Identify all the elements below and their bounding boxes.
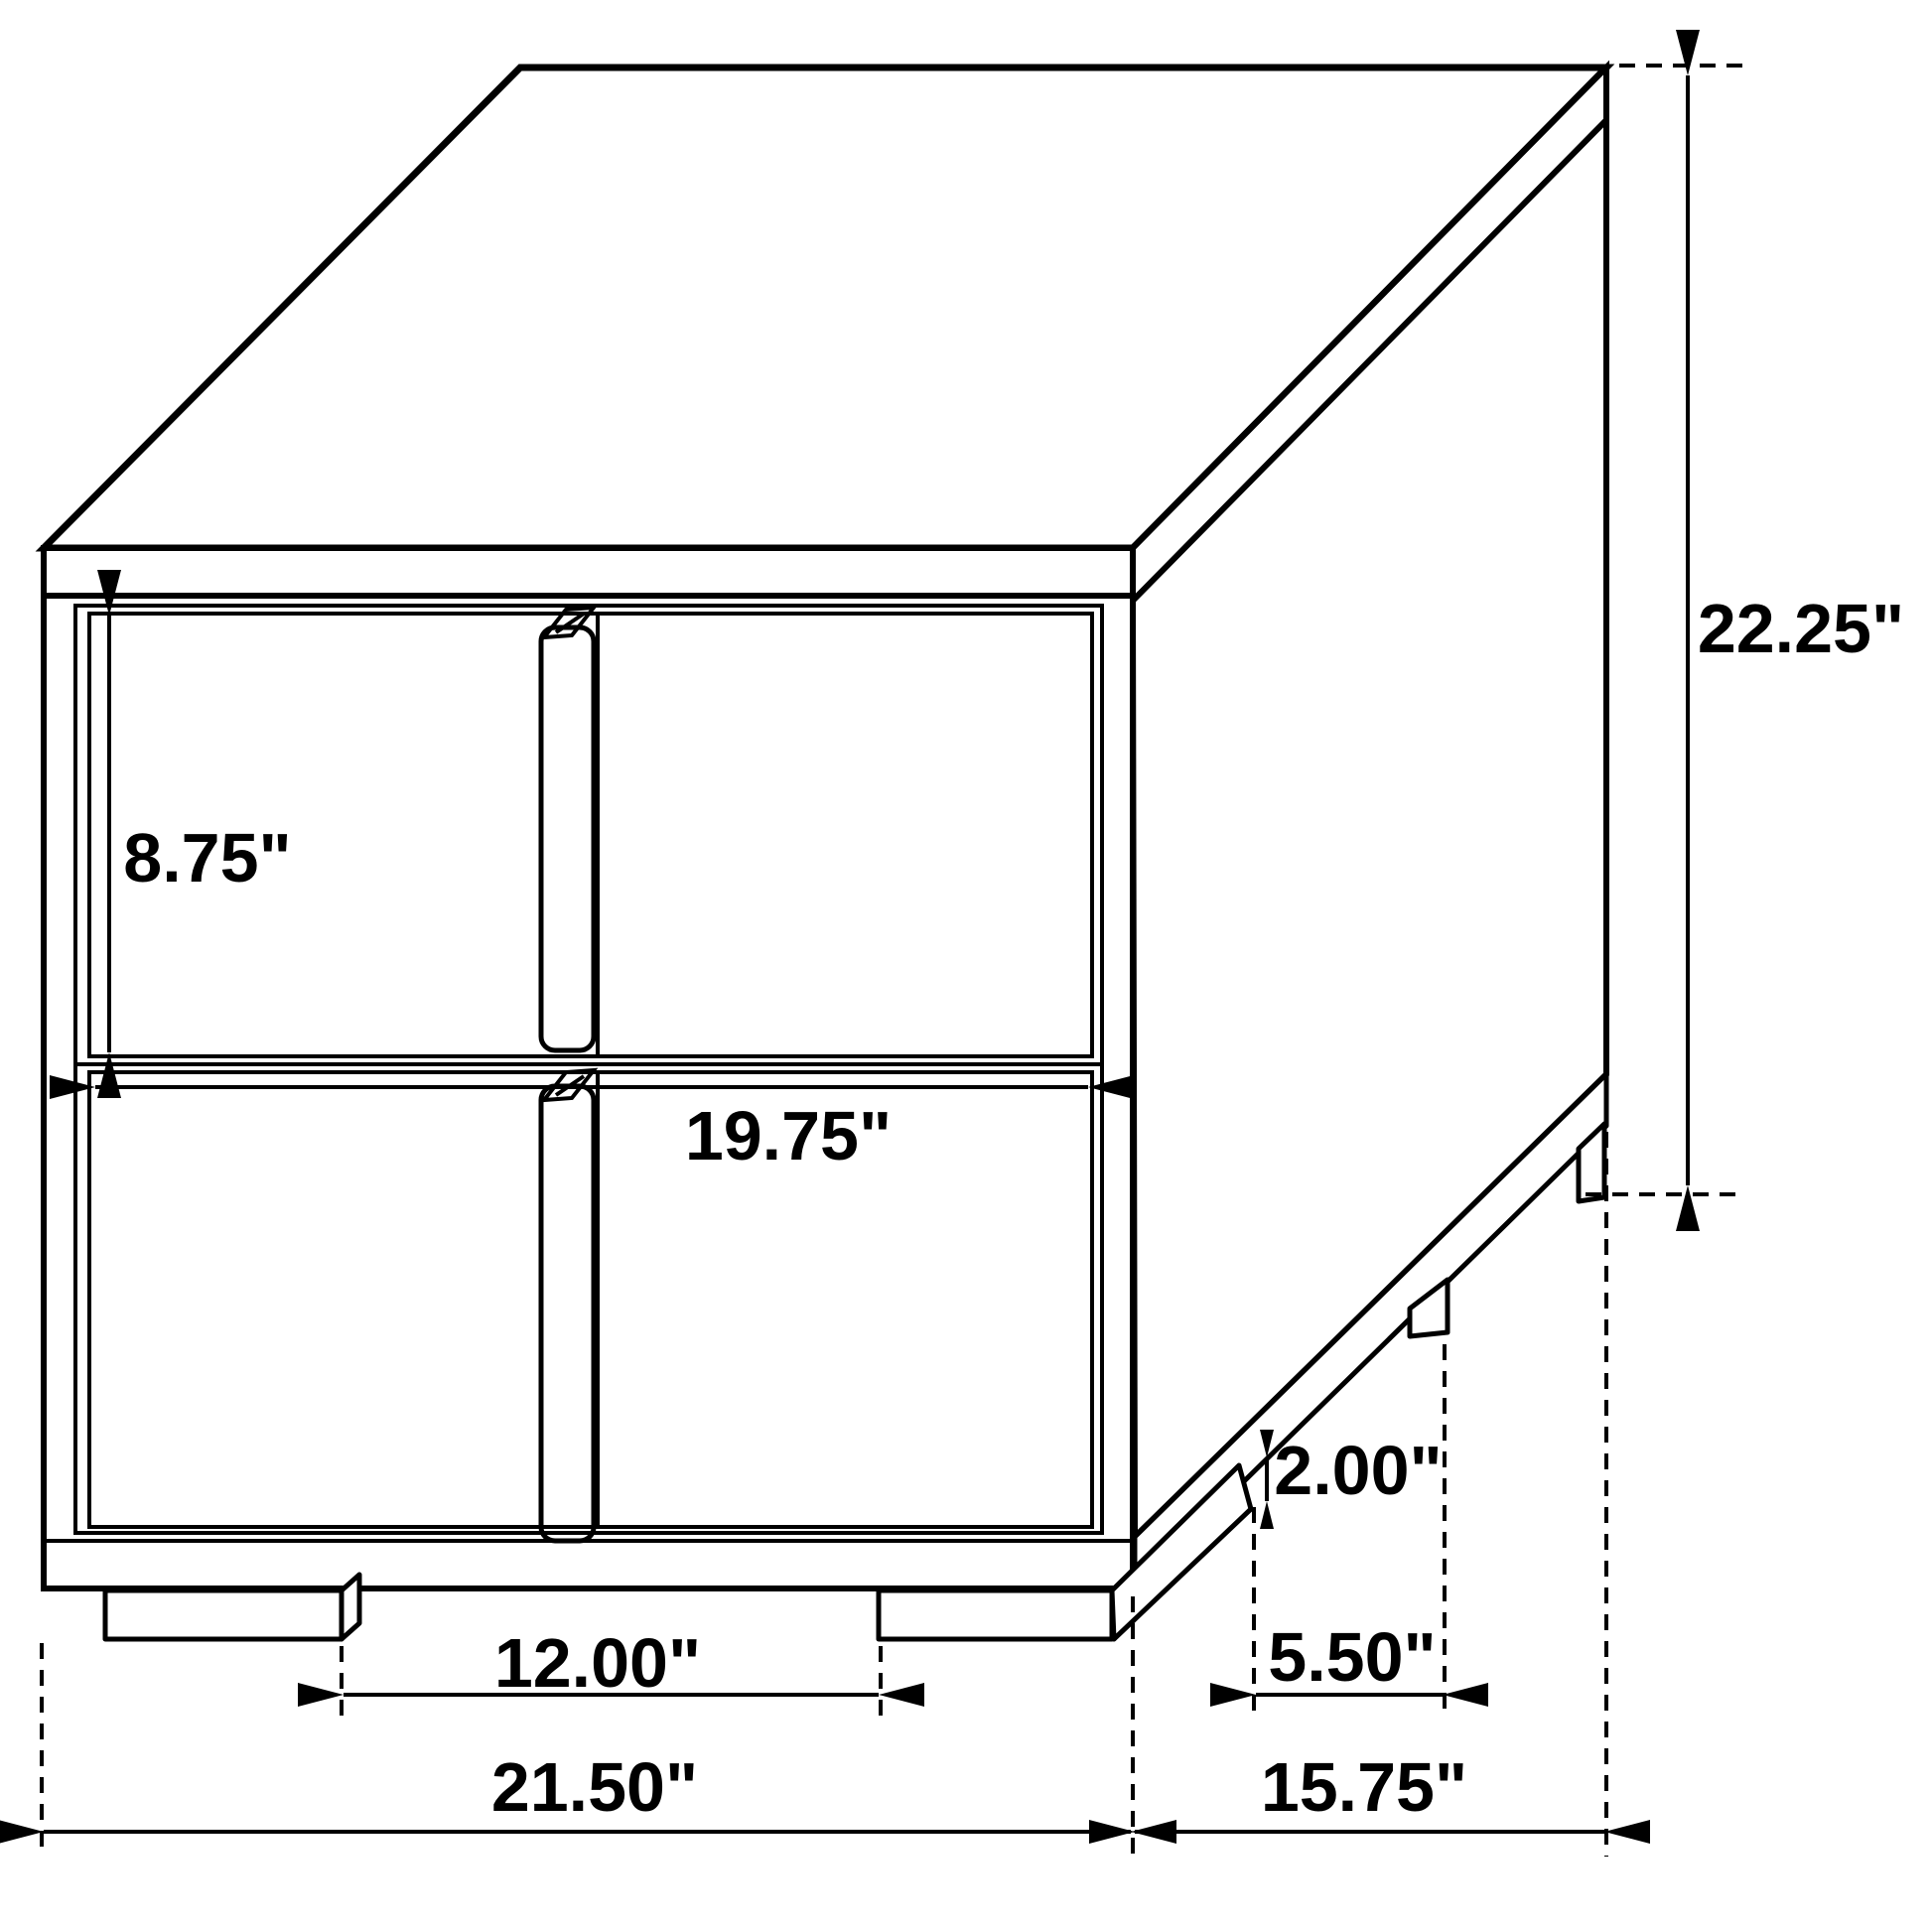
drawer-height-label: 8.75" xyxy=(123,819,291,897)
dimension-foot-height: 2.00" xyxy=(1267,1432,1443,1509)
front-foot-spacing-label: 12.00" xyxy=(494,1624,701,1702)
dimension-side-foot-spacing: 5.50" xyxy=(1256,1618,1443,1696)
dimension-total-width: 21.50" xyxy=(44,1748,1131,1832)
dimension-front-foot-spacing: 12.00" xyxy=(344,1624,879,1702)
dimension-total-height: 22.25" xyxy=(1688,75,1904,1185)
front-left-foot xyxy=(105,1590,342,1639)
tabletop-front-edge xyxy=(44,548,1133,596)
total-width-label: 21.50" xyxy=(491,1748,698,1826)
total-height-label: 22.25" xyxy=(1698,590,1904,667)
nightstand-line-drawing: 8.75" 19.75" 22.25" 2.00" 5.50" 12.00" 2… xyxy=(0,0,1932,1932)
front-right-foot xyxy=(879,1590,1112,1639)
side-foot-spacing-label: 5.50" xyxy=(1268,1618,1436,1696)
total-depth-label: 15.75" xyxy=(1261,1748,1467,1826)
diagram-canvas: 8.75" 19.75" 22.25" 2.00" 5.50" 12.00" 2… xyxy=(0,0,1932,1932)
drawer-width-label: 19.75" xyxy=(685,1097,892,1174)
dimension-total-depth: 15.75" xyxy=(1135,1748,1604,1832)
foot-height-label: 2.00" xyxy=(1274,1432,1442,1509)
